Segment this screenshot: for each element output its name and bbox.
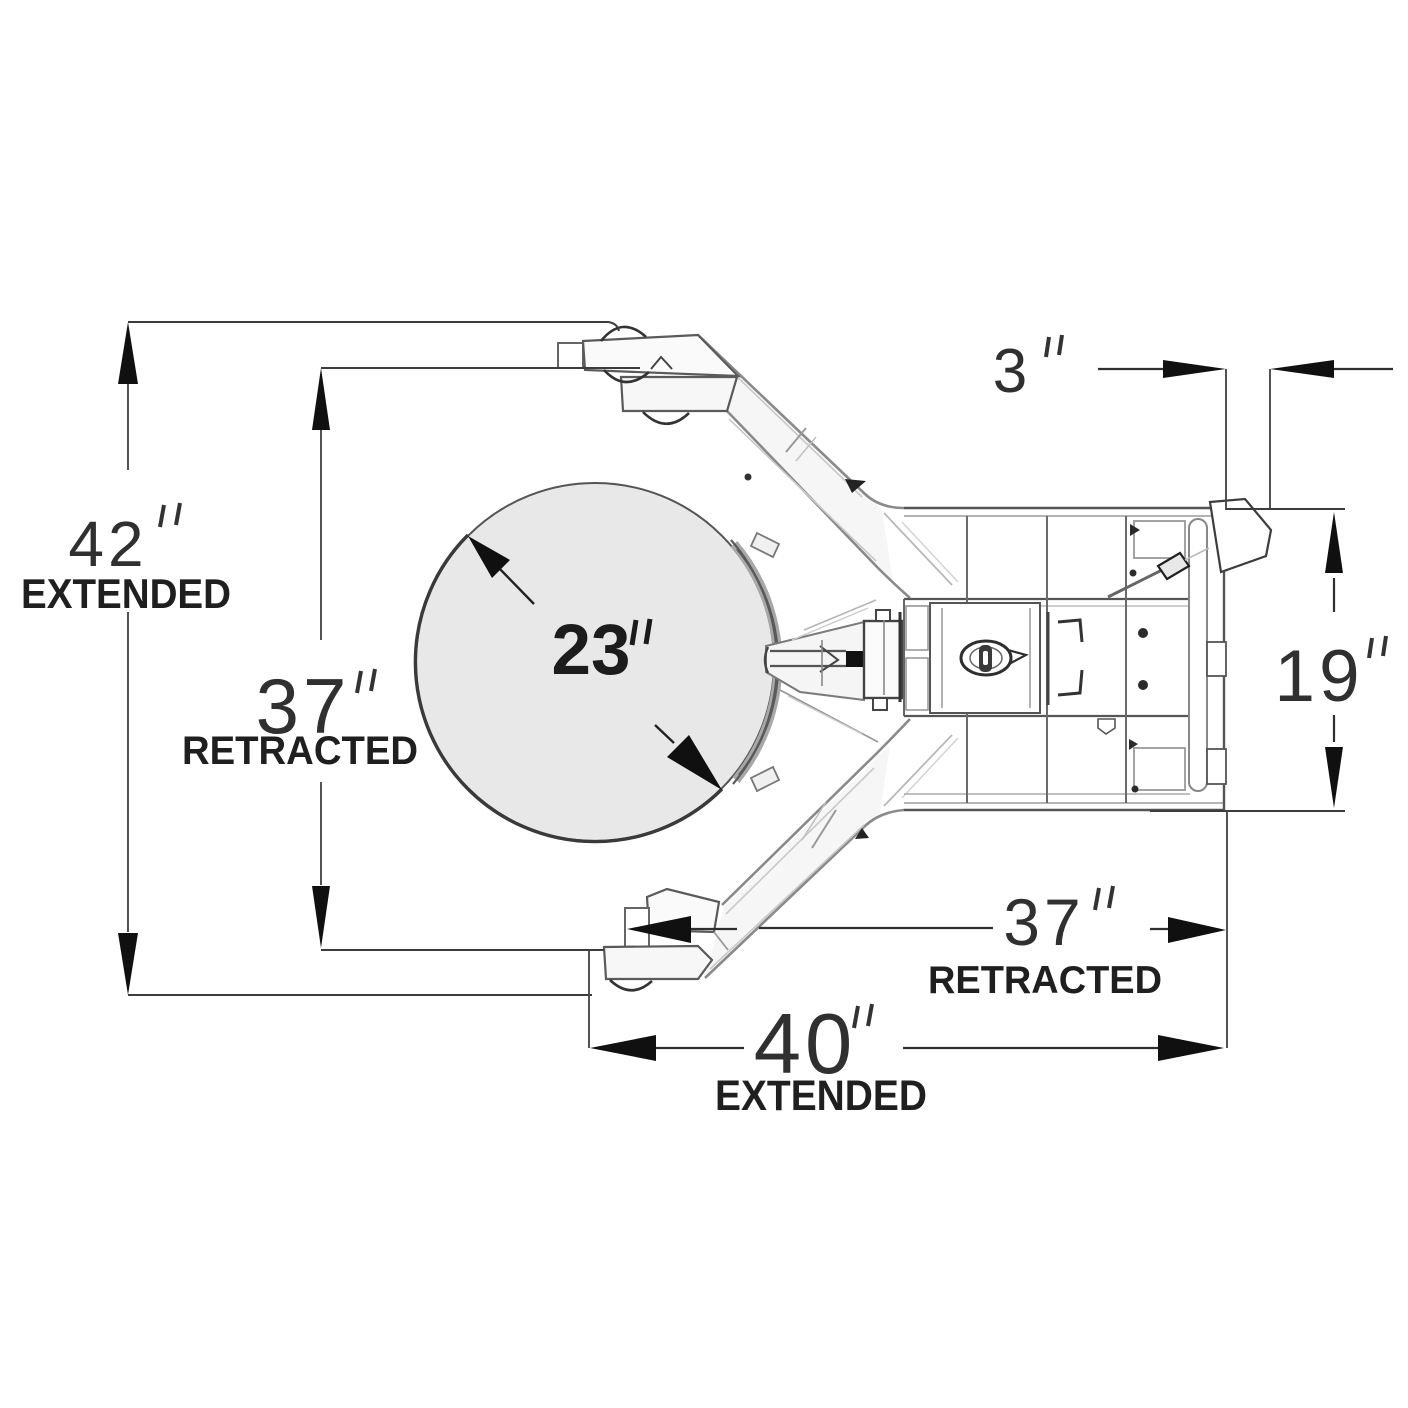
svg-text:37: 37	[1003, 885, 1084, 959]
svg-text:RETRACTED: RETRACTED	[928, 959, 1162, 1002]
svg-text:EXTENDED: EXTENDED	[21, 570, 231, 617]
svg-text:23: 23	[552, 611, 631, 690]
svg-text:3: 3	[993, 337, 1027, 406]
svg-text:EXTENDED: EXTENDED	[715, 1072, 927, 1120]
svg-text:19: 19	[1274, 636, 1363, 717]
svg-text:RETRACTED: RETRACTED	[182, 729, 418, 773]
